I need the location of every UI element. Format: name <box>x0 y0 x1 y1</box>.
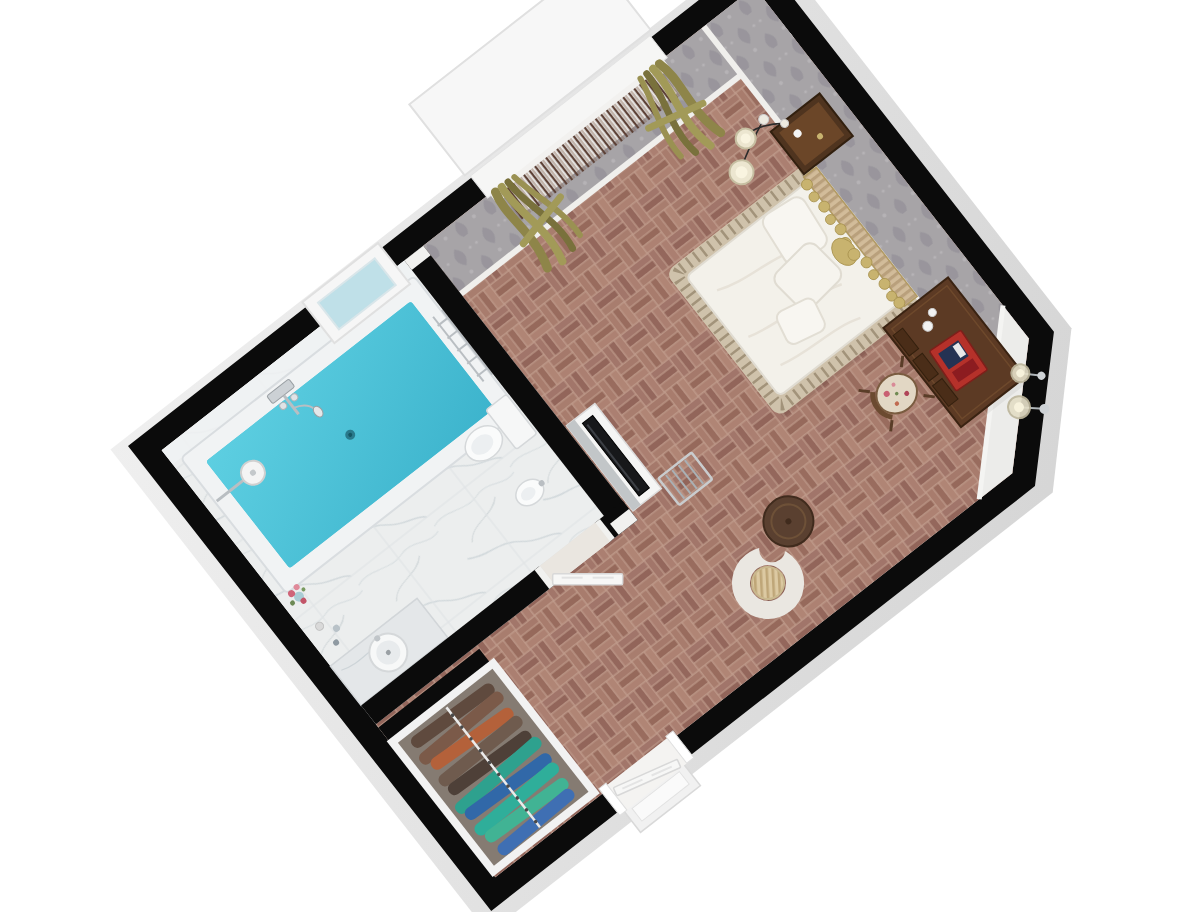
rotated-plan <box>56 0 1152 912</box>
bathroom-door-leaf <box>553 574 623 585</box>
floor-plan-render <box>0 0 1200 912</box>
floor-plan-svg <box>0 0 1200 912</box>
